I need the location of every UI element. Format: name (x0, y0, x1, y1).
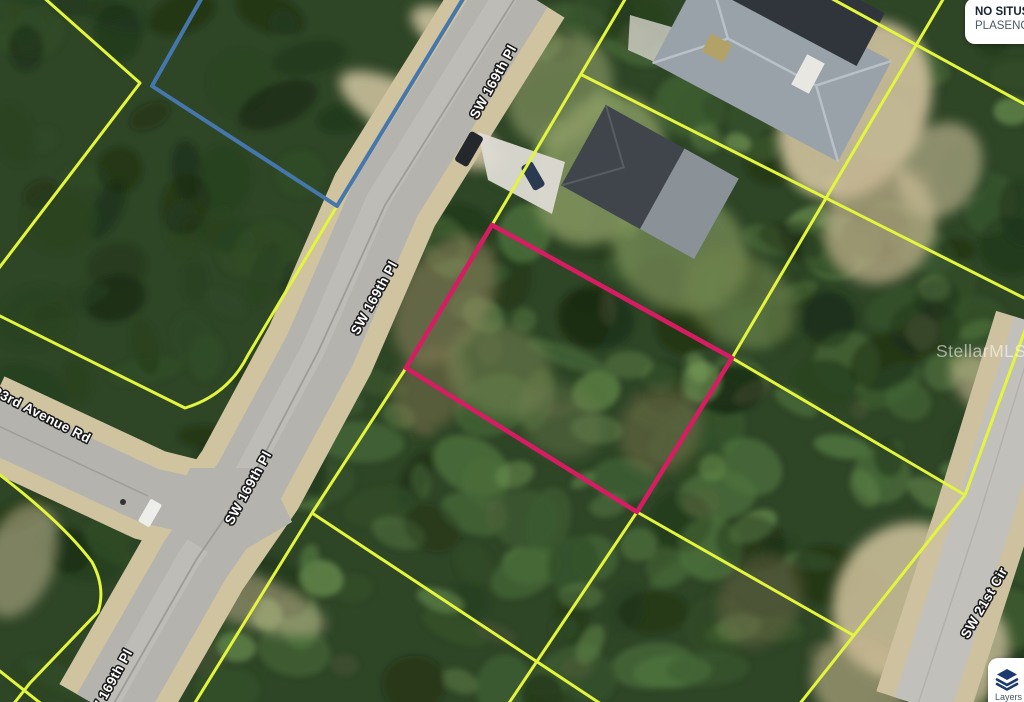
layers-icon (995, 667, 1019, 691)
mailbox-post (120, 499, 126, 505)
layers-button-label: Layers (995, 692, 1019, 702)
layers-button[interactable]: Layers (988, 658, 1024, 702)
parcel-info-card: NO SITUS PLASENCIA (965, 0, 1024, 44)
parcel-situs-text: NO SITUS (975, 6, 1024, 19)
aerial-map-canvas[interactable]: SW 169th PlSW 169th PlSW 169th PlSW 169t… (0, 0, 1024, 702)
parcel-owner-text: PLASENCIA (975, 19, 1024, 33)
map-viewer[interactable]: SW 169th PlSW 169th PlSW 169th PlSW 169t… (0, 0, 1024, 702)
